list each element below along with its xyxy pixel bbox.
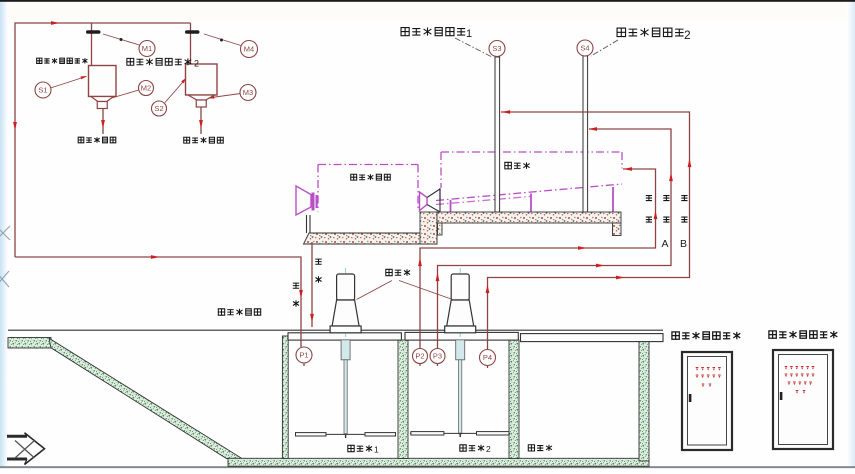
svg-text:P3: P3 bbox=[433, 352, 442, 361]
svg-text:S1: S1 bbox=[38, 86, 47, 95]
svg-text:M4: M4 bbox=[244, 45, 254, 54]
svg-text:P1: P1 bbox=[299, 351, 308, 360]
svg-text:S4: S4 bbox=[580, 44, 589, 53]
svg-text:P2: P2 bbox=[415, 352, 424, 361]
svg-text:2: 2 bbox=[194, 59, 199, 69]
svg-text:2: 2 bbox=[486, 444, 491, 454]
svg-text:A: A bbox=[662, 238, 669, 250]
svg-text:M2: M2 bbox=[141, 84, 151, 93]
svg-text:M3: M3 bbox=[243, 88, 253, 97]
svg-text:2: 2 bbox=[684, 28, 691, 42]
svg-text:M1: M1 bbox=[142, 44, 152, 53]
svg-text:S2: S2 bbox=[154, 104, 163, 113]
svg-text:1: 1 bbox=[374, 445, 379, 455]
svg-text:B: B bbox=[680, 238, 687, 250]
svg-text:1: 1 bbox=[466, 28, 472, 40]
svg-text:S3: S3 bbox=[492, 44, 501, 53]
svg-text:P4: P4 bbox=[483, 353, 492, 362]
